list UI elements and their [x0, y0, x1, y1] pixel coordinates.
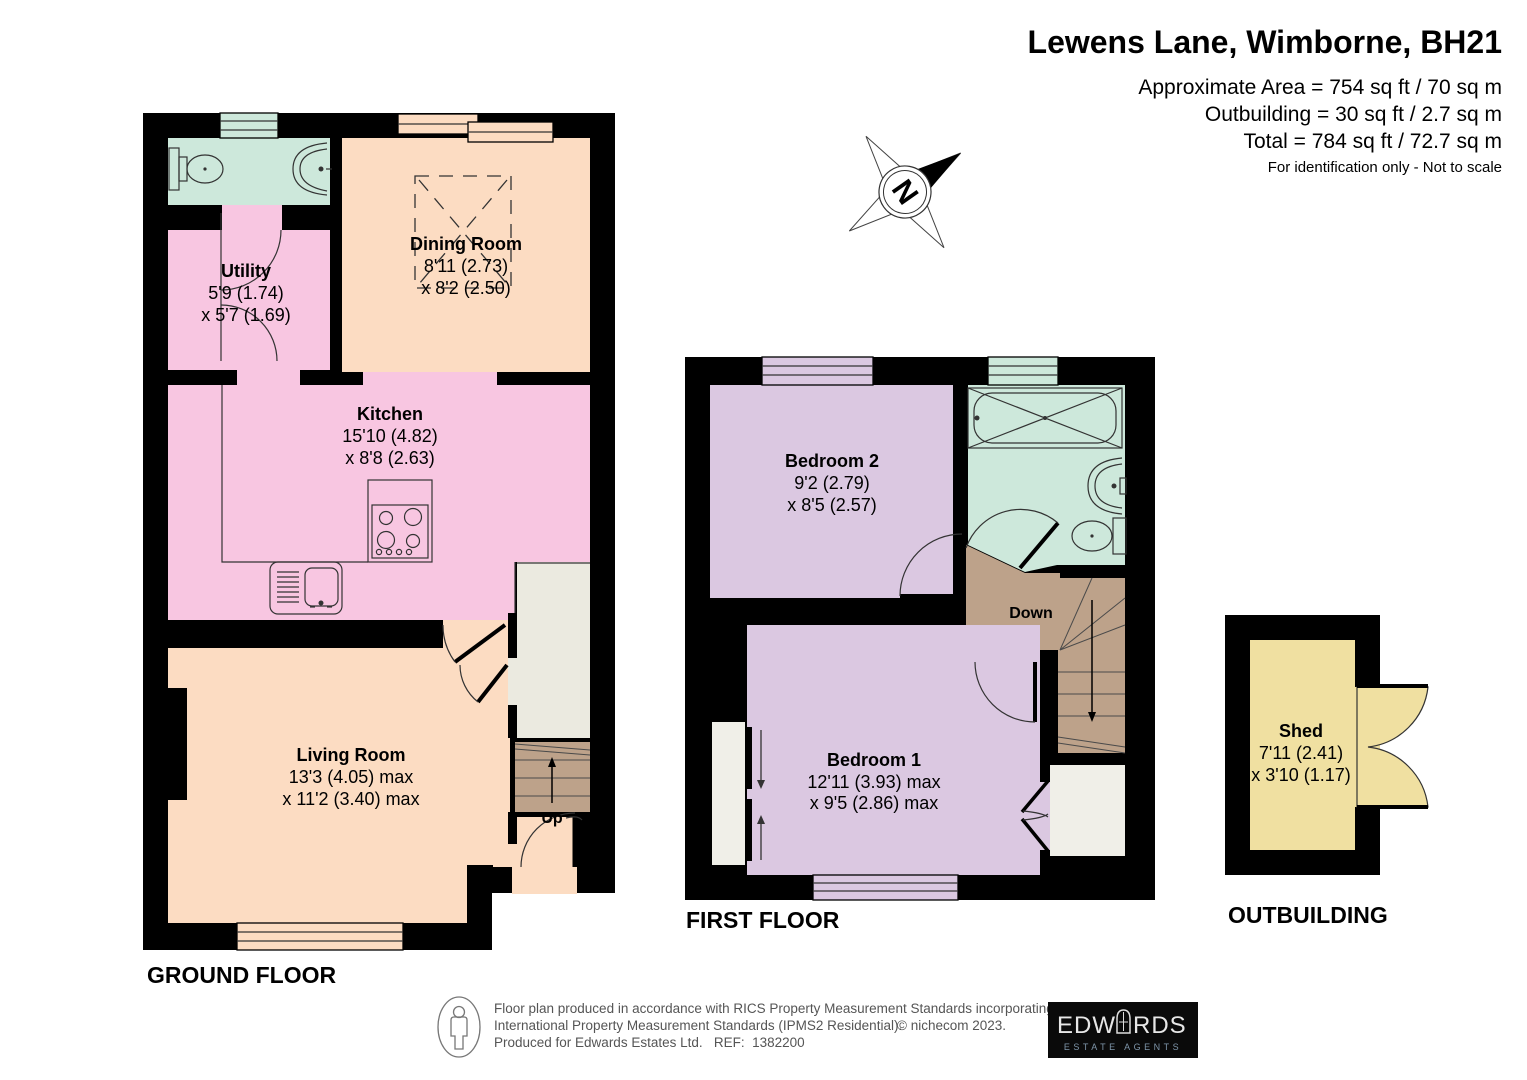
- page-title: Lewens Lane, Wimborne, BH21: [1028, 24, 1502, 60]
- room-dim-bedroom1-1: 12'11 (3.93) max: [807, 772, 940, 792]
- window: [813, 875, 958, 900]
- front-door-opening: [512, 867, 577, 894]
- floorplan-canvas: Lewens Lane, Wimborne, BH21 Approximate …: [0, 0, 1527, 1080]
- room-label-bedroom2: Bedroom 2: [785, 451, 879, 471]
- logo-text-left: EDW: [1057, 1012, 1116, 1039]
- room-dim-living-2: x 11'2 (3.40) max: [282, 789, 419, 809]
- room-dim-kitchen-2: x 8'8 (2.63): [345, 448, 434, 468]
- window: [220, 113, 278, 138]
- disclaimer-line3: Produced for Edwards Estates Ltd. REF: 1…: [494, 1035, 805, 1050]
- person-icon: [438, 997, 480, 1057]
- room-label-dining: Dining Room: [410, 234, 522, 254]
- room-label-shed: Shed: [1279, 721, 1323, 741]
- window: [762, 357, 873, 385]
- dining-kitchen-opening: [363, 372, 497, 385]
- room-dim-shed-2: x 3'10 (1.17): [1251, 765, 1351, 785]
- disclaimer-line1: Floor plan produced in accordance with R…: [494, 1001, 1054, 1016]
- ground-floor-label: GROUND FLOOR: [147, 962, 336, 988]
- room-dim-shed-1: 7'11 (2.41): [1259, 743, 1343, 763]
- room-dim-living-1: 13'3 (4.05) max: [289, 767, 414, 787]
- ground-floor-plan: Utility 5'9 (1.74) x 5'7 (1.69) Dining R…: [143, 113, 615, 988]
- entrance-hall: [493, 817, 577, 867]
- shed-double-doors: [1357, 687, 1428, 807]
- room-label-kitchen: Kitchen: [357, 404, 423, 424]
- room-dim-utility-1: 5'9 (1.74): [208, 283, 283, 303]
- utility-kitchen-opening: [237, 361, 300, 385]
- stairs-up-label: Up: [541, 810, 563, 827]
- first-floor-label: FIRST FLOOR: [686, 907, 840, 933]
- room-label-utility: Utility: [221, 261, 271, 281]
- room-dim-bedroom2-1: 9'2 (2.79): [794, 473, 869, 493]
- logo-subtitle: ESTATE AGENTS: [1064, 1042, 1182, 1052]
- floorplan-page: Lewens Lane, Wimborne, BH21 Approximate …: [0, 0, 1527, 1080]
- disclaimer-line2: International Property Measurement Stand…: [494, 1018, 902, 1033]
- edwards-logo: EDW RDS ESTATE AGENTS: [1048, 1002, 1198, 1058]
- window: [988, 357, 1058, 385]
- compass-icon: N: [810, 97, 999, 286]
- logo-text-right: RDS: [1133, 1012, 1187, 1039]
- room-dining: [342, 138, 590, 372]
- outbuilding-plan: Shed 7'11 (2.41) x 3'10 (1.17) OUTBUILDI…: [1225, 615, 1428, 928]
- room-dim-bedroom2-2: x 8'5 (2.57): [787, 495, 876, 515]
- outbuilding-label: OUTBUILDING: [1228, 902, 1388, 928]
- header: Lewens Lane, Wimborne, BH21 Approximate …: [1028, 24, 1502, 176]
- room-bathroom: [968, 385, 1125, 572]
- room-dim-dining-2: x 8'2 (2.50): [421, 278, 510, 298]
- room-dim-dining-1: 8'11 (2.73): [424, 256, 508, 276]
- room-dim-bedroom1-2: x 9'5 (2.86) max: [810, 793, 939, 813]
- scale-note: For identification only - Not to scale: [1268, 159, 1502, 176]
- stairs-down-label: Down: [1009, 605, 1053, 622]
- first-floor-plan: Bedroom 2 9'2 (2.79) x 8'5 (2.57) Bedroo…: [685, 357, 1155, 933]
- cupboard: [1050, 765, 1125, 856]
- chimney-breast: [143, 688, 187, 800]
- approximate-area: Approximate Area = 754 sq ft / 70 sq m: [1138, 76, 1502, 99]
- room-dim-kitchen-1: 15'10 (4.82): [342, 426, 438, 446]
- total-area: Total = 784 sq ft / 72.7 sq m: [1243, 130, 1502, 153]
- copyright: © nichecom 2023.: [897, 1018, 1006, 1033]
- understairs-cupboard: [517, 562, 590, 738]
- wardrobe: [712, 722, 745, 865]
- room-label-living: Living Room: [297, 745, 406, 765]
- outbuilding-area: Outbuilding = 30 sq ft / 2.7 sq m: [1205, 103, 1502, 126]
- footer: Floor plan produced in accordance with R…: [438, 997, 1198, 1058]
- window: [237, 923, 403, 950]
- room-label-bedroom1: Bedroom 1: [827, 750, 921, 770]
- wc-door-opening: [222, 205, 282, 230]
- cupboard-door-opening: [508, 658, 517, 705]
- room-dim-utility-2: x 5'7 (1.69): [201, 305, 290, 325]
